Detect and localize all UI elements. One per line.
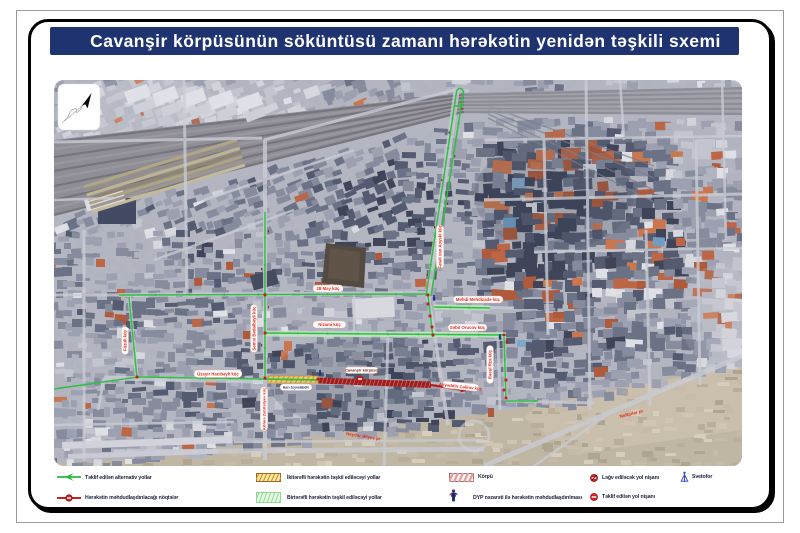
svg-text:Cavanşir körpüsü: Cavanşir körpüsü [345,368,378,373]
svg-text:Füzuli küç: Füzuli küç [123,329,128,351]
svg-text:Fətəli xan Xoyski küç: Fətəli xan Xoyski küç [438,224,443,268]
svg-text:Köhnə Zabitəliyev küç: Köhnə Zabitəliyev küç [261,387,266,430]
svg-text:Nizami küç: Nizami küç [318,322,341,327]
svg-text:28 May küç: 28 May küç [317,286,341,291]
svg-text:Rəsul Rza küç: Rəsul Rza küç [488,349,493,379]
svg-text:Hacı Zeynalabdin: Hacı Zeynalabdin [283,385,309,389]
svg-text:Üzeyir Hacıbəyli küç: Üzeyir Hacıbəyli küç [197,371,239,376]
svg-text:Şəmsi Bədəlbəyli küç: Şəmsi Bədəlbəyli küç [252,306,257,351]
svg-text:Səbit Orucov küç: Səbit Orucov küç [450,325,486,330]
svg-text:Mehdi Mehdizadə küç: Mehdi Mehdizadə küç [456,297,501,302]
